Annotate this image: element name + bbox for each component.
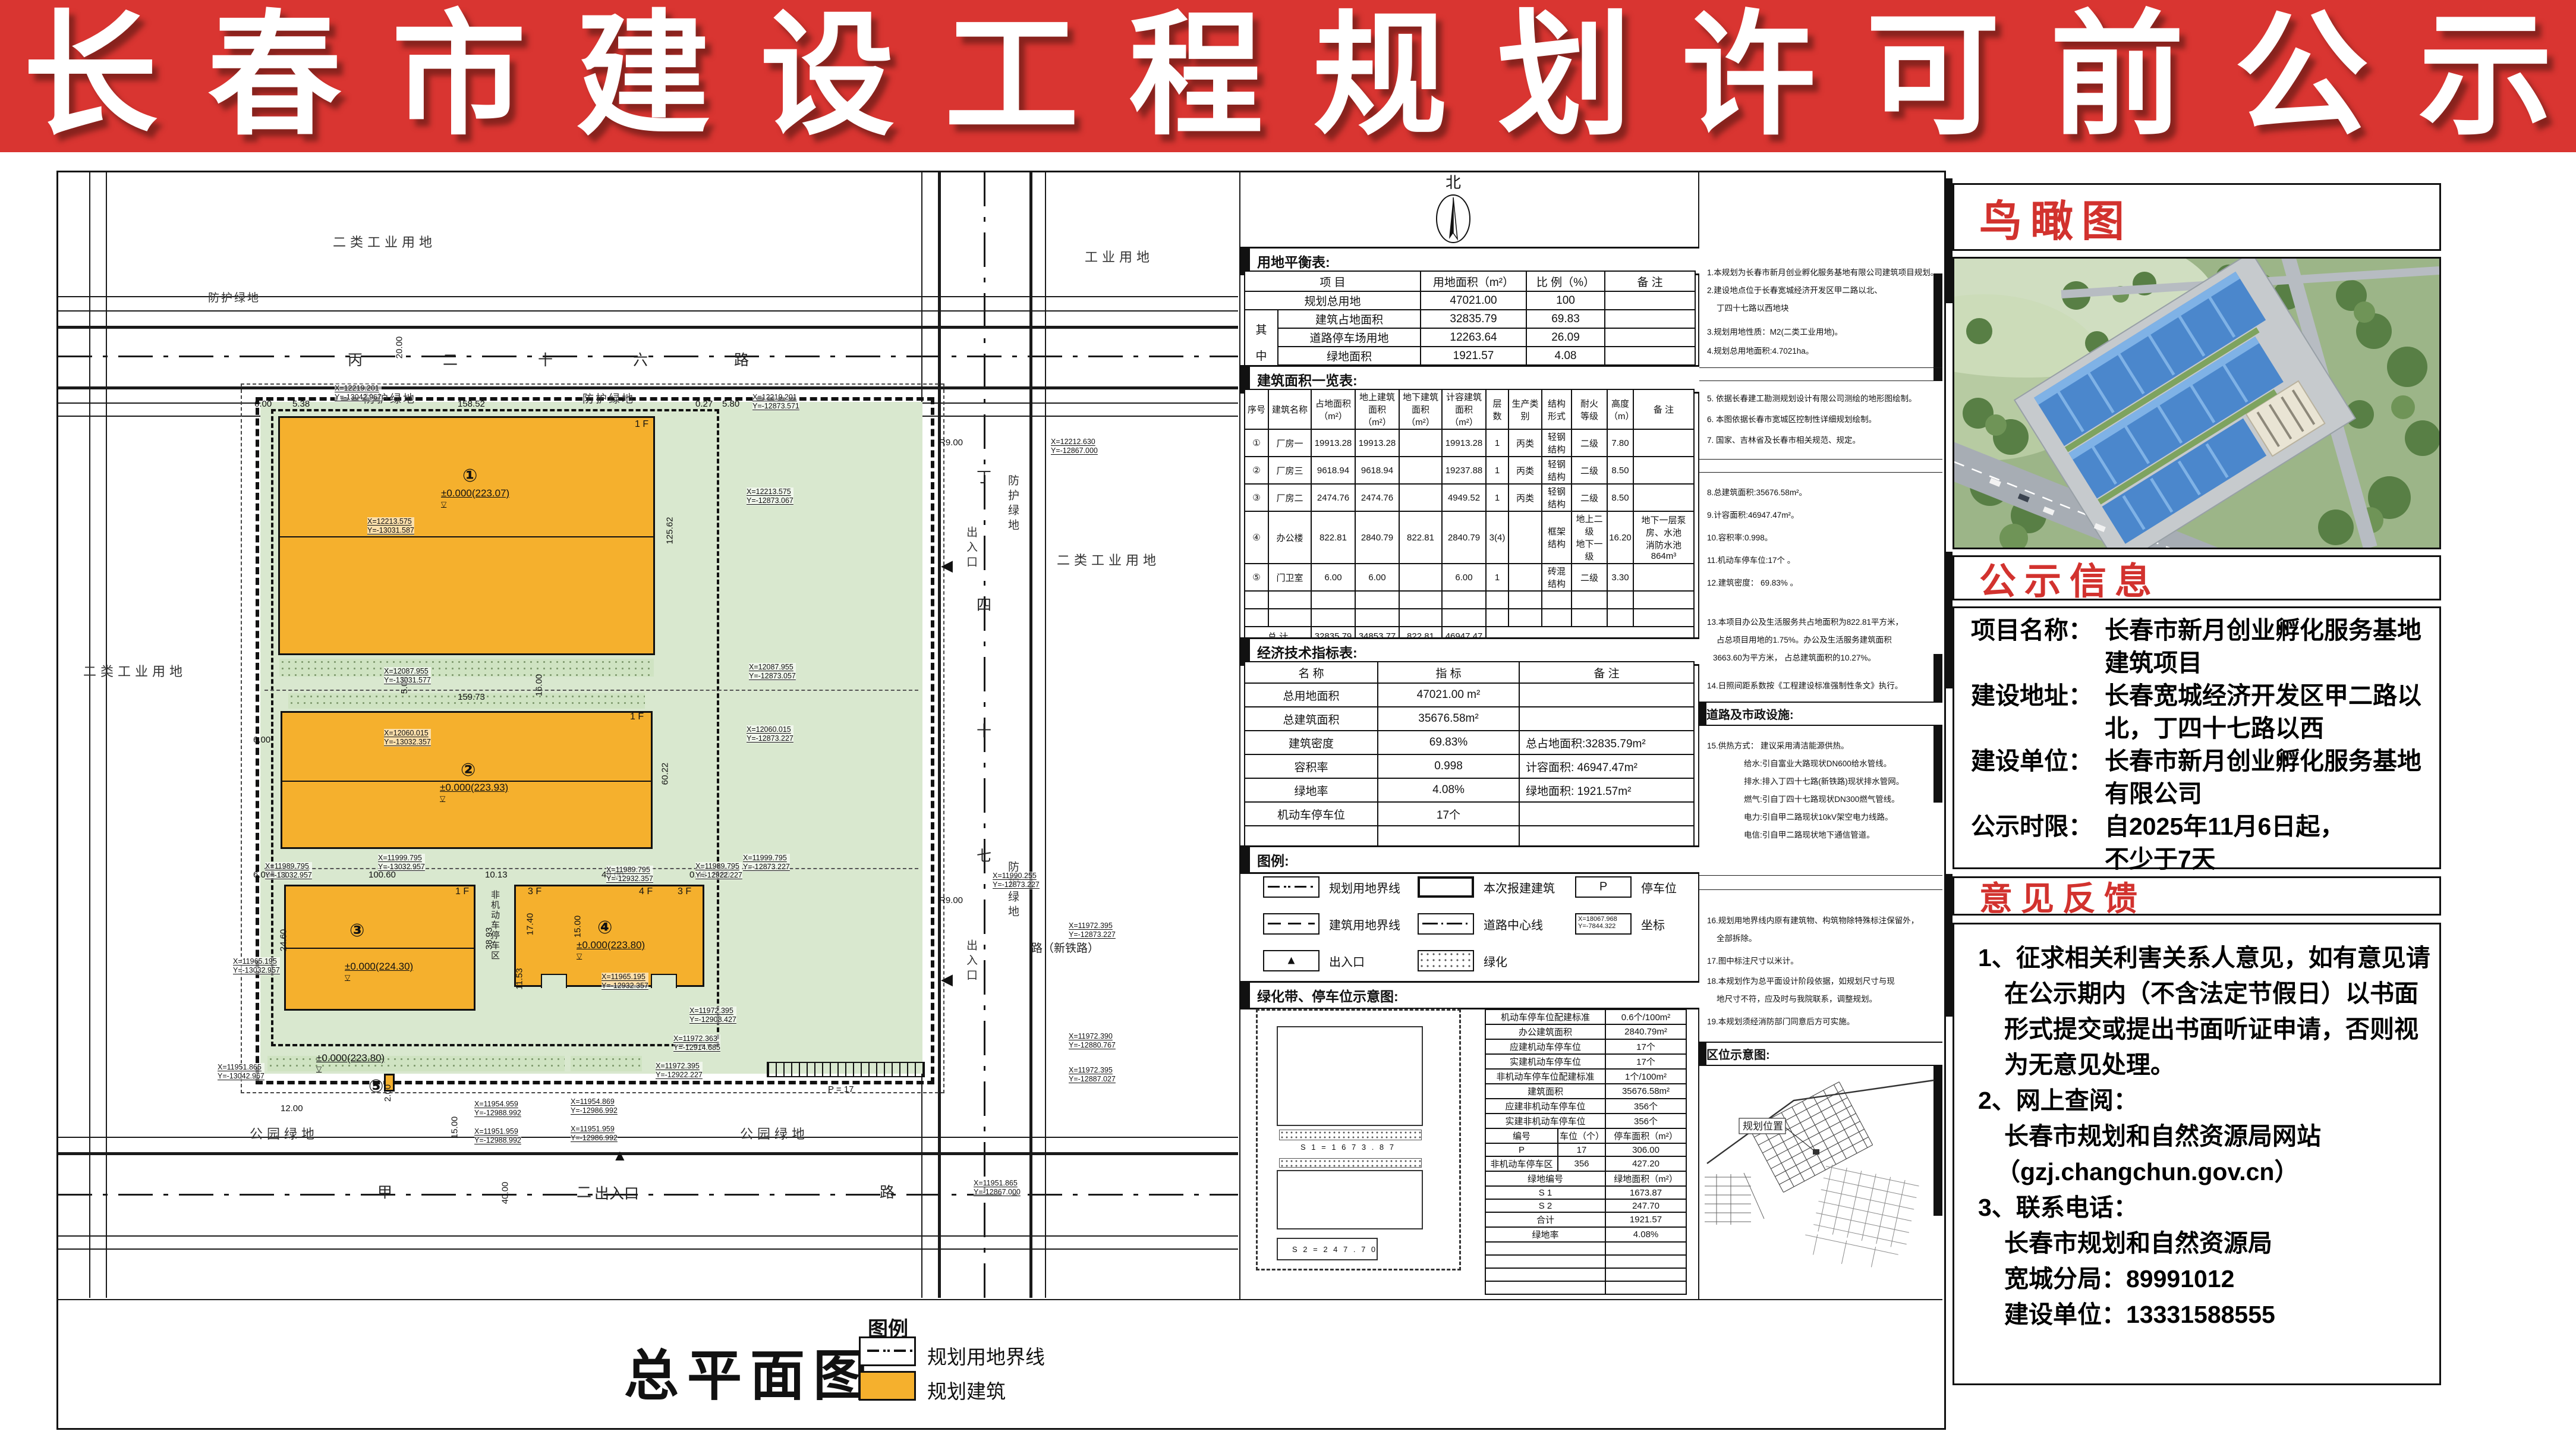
building-list-cell bbox=[1355, 591, 1399, 609]
building-list-cell bbox=[1268, 591, 1311, 609]
plan-annotation-tri: ◀ bbox=[941, 558, 953, 573]
green-parking-cell: 2840.79m² bbox=[1605, 1024, 1686, 1039]
eco-cell: 总占地面积:32835.79m² bbox=[1519, 731, 1694, 754]
green-parking-cell: 车位（个） bbox=[1558, 1128, 1605, 1143]
building-list-cell bbox=[1509, 511, 1542, 564]
plan-annotation-dim: 0.27 bbox=[695, 399, 713, 409]
building-list-cell: 822.81 bbox=[1399, 511, 1442, 564]
info-value-line: 有限公司 bbox=[2105, 778, 2421, 810]
building-list-header: 结构 形式 bbox=[1542, 389, 1572, 429]
cell: 4.08 bbox=[1526, 347, 1605, 365]
info-value: 长春市新月创业孵化服务基地建筑项目 bbox=[2105, 614, 2421, 680]
green-parking-cell bbox=[1605, 1242, 1686, 1255]
panel-tick bbox=[1945, 874, 1953, 1017]
plan-annotation-coord: X=11965.195 Y=-13032.957 bbox=[233, 957, 280, 975]
eco-header: 指 标 bbox=[1378, 662, 1519, 683]
green-parking-cell bbox=[1485, 1281, 1605, 1294]
note-line: 给水:引自富业大路现状DN600给水管线。 bbox=[1744, 759, 1940, 769]
green-parking-cell: 编号 bbox=[1485, 1128, 1558, 1143]
note-line: 17.图中标注尺寸以米计。 bbox=[1707, 956, 1940, 966]
info-label: 公示时限： bbox=[1971, 810, 2105, 876]
building-list-cell: 二级 bbox=[1572, 564, 1607, 591]
legend-item-出入口: ▲出入口 bbox=[1263, 950, 1365, 971]
utilities-title: 道路及市政设施: bbox=[1698, 702, 1942, 726]
info-box: 项目名称：长春市新月创业孵化服务基地建筑项目建设地址：长春宽城经济开发区甲二路以… bbox=[1953, 606, 2441, 869]
plan-annotation-coord: X=11989.795 Y=-12932.357 bbox=[606, 866, 653, 883]
plan-annotation-coord: X=11954.959 Y=-12988.992 bbox=[474, 1100, 521, 1118]
green-parking-cell: 17个 bbox=[1605, 1054, 1686, 1069]
plan-annotation-land: 公园绿地 bbox=[250, 1124, 319, 1143]
building-list-cell: 6.00 bbox=[1355, 564, 1399, 591]
building-list-cell: 9618.94 bbox=[1355, 457, 1399, 484]
legend-swatch-building bbox=[859, 1371, 916, 1401]
building-list-cell: 丙类 bbox=[1509, 484, 1542, 511]
plan-annotation-road: 十 bbox=[538, 348, 553, 370]
plan-annotation-circ: ⑤ bbox=[369, 1076, 383, 1097]
plan-annotation-green: 防护绿地 bbox=[582, 390, 635, 406]
building-list-header: 地上建筑 面积（m²） bbox=[1355, 389, 1399, 429]
plan-annotation-greenv: 防护绿地 bbox=[1004, 474, 1021, 534]
plan-annotation-coord: X=11999.795 Y=-13032.957 bbox=[378, 854, 425, 872]
plan-annotation-dim: 12.00 bbox=[281, 1103, 303, 1114]
plan-annotation-coord: X=11972.363 Y=-12914.685 bbox=[673, 1034, 720, 1052]
note-line: 4.规划总用地面积:4.7021ha。 bbox=[1707, 346, 1940, 356]
legend-item-本次报建建筑: 本次报建建筑 bbox=[1418, 876, 1555, 898]
road-line bbox=[58, 1248, 1238, 1250]
note-item: 6. 本图依据长春市宽城区控制性详细规划绘制。 bbox=[1707, 414, 1940, 432]
legend-glyph: ▲ bbox=[1264, 954, 1318, 968]
legend-item-停车位: P停车位 bbox=[1575, 876, 1677, 898]
building-list-cell: 1 bbox=[1486, 457, 1509, 484]
building-list-cell bbox=[1399, 457, 1442, 484]
legend-item-绿化: 绿化 bbox=[1418, 950, 1507, 971]
eco-cell bbox=[1519, 802, 1694, 826]
building-4-notch bbox=[651, 974, 677, 988]
building-list-cell: 1 bbox=[1486, 429, 1509, 457]
note-line: 2.建设地点位于长春宽城经济开发区甲二路以北、 bbox=[1707, 285, 1940, 295]
info-row: 建设单位：长春市新月创业孵化服务基地有限公司 bbox=[1971, 745, 2439, 810]
plan-annotation-road: 丙 bbox=[348, 348, 363, 370]
building-list-cell: 地上二级 地下一级 bbox=[1572, 511, 1607, 564]
green-parking-cell: P bbox=[1485, 1143, 1558, 1156]
plan-annotation-circ: ① bbox=[462, 466, 477, 486]
plan-annotation-road: 丁 bbox=[977, 466, 991, 487]
note-item: 17.图中标注尺寸以米计。 bbox=[1707, 956, 1940, 974]
building-list-cell: 地下一层泵房、水池 消防水池864m³ bbox=[1633, 511, 1694, 564]
info-value-line: 不少于7天 bbox=[2105, 843, 2344, 876]
plan-annotation-fl: 3 F bbox=[678, 886, 691, 897]
building-list-cell bbox=[1607, 591, 1633, 609]
feedback-line: 3、联系电话： bbox=[1978, 1190, 2439, 1225]
building-list-cell: 轻钢 结构 bbox=[1542, 484, 1572, 511]
note-item: 10.容积率:0.998。 bbox=[1707, 533, 1940, 551]
guide-line bbox=[264, 690, 918, 691]
building-list-cell: 二级 bbox=[1572, 429, 1607, 457]
building-list-cell: 19913.28 bbox=[1442, 429, 1486, 457]
plan-annotation-coord: X=12087.955 Y=-12873.057 bbox=[749, 663, 796, 681]
plan-annotation-greenv: 出入口 bbox=[963, 939, 979, 984]
legend-item-label: 道路中心线 bbox=[1484, 916, 1543, 933]
building-list-header: 地下建筑 面积（m²） bbox=[1399, 389, 1442, 429]
note-line: 14.日照间距系数按《工程建设标准强制性条文》执行。 bbox=[1707, 681, 1940, 691]
cell bbox=[1605, 347, 1695, 365]
note-line: 11.机动车停车位:17个 。 bbox=[1707, 555, 1940, 565]
site-plan bbox=[58, 172, 1238, 1298]
plan-annotation-road: 出入口 bbox=[594, 1182, 639, 1203]
plan-annotation-land: 二类工业用地 bbox=[333, 232, 436, 251]
legend-item-label: 出入口 bbox=[1329, 952, 1365, 970]
building-list-header: 计容建筑 面积（m²） bbox=[1442, 389, 1486, 429]
green-parking-cell: 建筑面积 bbox=[1485, 1084, 1605, 1099]
building-list-cell: 二级 bbox=[1572, 484, 1607, 511]
north-arrow: 北 bbox=[1424, 174, 1483, 248]
green-parking-cell bbox=[1485, 1242, 1605, 1255]
cell: 绿地面积 bbox=[1278, 347, 1421, 365]
green-parking-cell: 非机动车停车位配建标准 bbox=[1485, 1069, 1605, 1084]
eco-cell: 0.998 bbox=[1378, 754, 1519, 778]
plan-annotation-coord: X=12213.575 Y=-13031.587 bbox=[367, 517, 414, 535]
plan-annotation-dimr: 11.53 bbox=[515, 968, 525, 989]
green-parking-cell: 356 bbox=[1558, 1156, 1605, 1171]
plan-annotation-vertsm: 非机动车停车区 bbox=[489, 890, 501, 961]
building-list-cell bbox=[1311, 591, 1355, 609]
cell bbox=[1605, 291, 1695, 310]
building-list-cell: 9618.94 bbox=[1311, 457, 1355, 484]
note-sep bbox=[1699, 472, 1942, 473]
building-list-cell bbox=[1399, 484, 1442, 511]
info-label: 建设单位： bbox=[1971, 745, 2105, 810]
building-list-header: 备 注 bbox=[1633, 389, 1694, 429]
plan-annotation-green: 防护绿地 bbox=[208, 289, 260, 305]
note-line: 地尺寸不符，应及时与我院联系，调整规划。 bbox=[1717, 994, 1940, 1004]
page: 长春市建设工程规划许可前公示 bbox=[0, 0, 2576, 1431]
building-list-cell bbox=[1399, 564, 1442, 591]
plan-annotation-dim: R9.00 bbox=[939, 438, 963, 448]
green-parking-cell: 35676.58m² bbox=[1605, 1084, 1686, 1099]
plan-annotation-dim: 159.73 bbox=[458, 692, 485, 702]
eco-cell: 47021.00 m² bbox=[1378, 683, 1519, 707]
s2-label: S 2 = 2 4 7 . 7 0 bbox=[1292, 1245, 1377, 1254]
building-list-header: 占地面积 （m²） bbox=[1311, 389, 1355, 429]
building-list-cell: ③ bbox=[1245, 484, 1268, 511]
plan-annotation-coord: X=12219.201 Y=-13042.967 bbox=[335, 384, 382, 402]
note-line: 19.本规划须经消防部门同意后方可实施。 bbox=[1707, 1017, 1940, 1027]
info-value-line: 自2025年11月6日起， bbox=[2105, 810, 2344, 843]
note-item: 3.规划用地性质：M2(二类工业用地)。 bbox=[1707, 327, 1940, 345]
eco-cell bbox=[1519, 683, 1694, 707]
note-sep bbox=[1699, 380, 1942, 381]
plan-annotation-circ: ② bbox=[461, 760, 475, 781]
building-list-cell: ② bbox=[1245, 457, 1268, 484]
info-label: 项目名称： bbox=[1971, 614, 2105, 680]
eco-header: 备 注 bbox=[1519, 662, 1694, 683]
note-sep bbox=[1699, 875, 1942, 876]
legend-coord: X=18067.968 Y=-7844.322 bbox=[1576, 914, 1630, 931]
plan-annotation-greenv: 出入口 bbox=[963, 526, 979, 571]
building-list-header: 序号 bbox=[1245, 389, 1268, 429]
note-item: 16.规划用地界线内原有建筑物、构筑物除特殊标注保留外，全部拆除。 bbox=[1707, 916, 1940, 951]
green-parking-cell: 356个 bbox=[1605, 1114, 1686, 1128]
feedback-line: 2、网上查阅： bbox=[1978, 1083, 2439, 1118]
building-list-cell: 丙类 bbox=[1509, 429, 1542, 457]
building-list-cell: 办公楼 bbox=[1268, 511, 1311, 564]
th-item: 项 目 bbox=[1245, 271, 1421, 291]
building-list-cell: 7.80 bbox=[1607, 429, 1633, 457]
building-list-cell: 门卫室 bbox=[1268, 564, 1311, 591]
building-list-cell bbox=[1442, 609, 1486, 627]
note-item: 11.机动车停车位:17个 。 bbox=[1707, 555, 1940, 573]
plan-title: 总平面图 bbox=[624, 1332, 876, 1411]
green-parking-cell: 1921.57 bbox=[1605, 1212, 1686, 1227]
building-list-cell: 框架 结构 bbox=[1542, 511, 1572, 564]
eco-cell: 4.08% bbox=[1378, 778, 1519, 802]
building-list-cell: ④ bbox=[1245, 511, 1268, 564]
green-parking-cell bbox=[1605, 1268, 1686, 1281]
info-row: 项目名称：长春市新月创业孵化服务基地建筑项目 bbox=[1971, 614, 2439, 680]
plan-annotation-coord: X=11972.395 Y=-12887.027 bbox=[1069, 1066, 1116, 1084]
info-value: 长春市新月创业孵化服务基地有限公司 bbox=[2105, 745, 2421, 810]
plan-annotation-fl: 1 F bbox=[630, 712, 644, 722]
building-list-cell bbox=[1245, 591, 1268, 609]
green-hatch bbox=[267, 1056, 565, 1071]
plan-annotation-road: 七 bbox=[977, 844, 991, 866]
plan-annotation-coord: X=12060.015 Y=-13032.357 bbox=[384, 729, 431, 747]
green-parking-cell: 0.6个/100m² bbox=[1605, 1009, 1686, 1024]
green-parking-cell: 应建非机动车停车位 bbox=[1485, 1099, 1605, 1114]
note-line: 全部拆除。 bbox=[1717, 933, 1940, 943]
cell: 道路停车场用地 bbox=[1278, 328, 1421, 347]
note-sep bbox=[1699, 459, 1942, 460]
legend-swatch: X=18067.968 Y=-7844.322 bbox=[1575, 913, 1632, 935]
legend-label-building: 规划建筑 bbox=[927, 1376, 1006, 1404]
plan-annotation-dim: 10.13 bbox=[485, 870, 508, 880]
building-list-cell bbox=[1572, 609, 1607, 627]
cell: 69.83 bbox=[1526, 310, 1605, 328]
cell: 建筑占地面积 bbox=[1278, 310, 1421, 328]
building-list-cell bbox=[1633, 484, 1694, 511]
building-list-cell: 轻钢 结构 bbox=[1542, 429, 1572, 457]
plan-annotation-coord: X=12060.015 Y=-12873.227 bbox=[747, 725, 793, 743]
plan-annotation-circ: ④ bbox=[597, 917, 612, 938]
note-item: 7. 国家、吉林省及长春市相关规范、规定。 bbox=[1707, 435, 1940, 453]
building-list-cell bbox=[1633, 609, 1694, 627]
legend-item-道路中心线: 道路中心线 bbox=[1418, 913, 1543, 935]
plan-annotation-land: 工业用地 bbox=[1085, 247, 1154, 266]
plan-annotation-fl: 1 F bbox=[455, 886, 469, 897]
building-list-cell bbox=[1607, 609, 1633, 627]
note-line: 占总项目用地的1.75%。办公及生活服务建筑面积 bbox=[1717, 635, 1940, 645]
road-line bbox=[58, 1235, 1238, 1237]
plan-annotation-dimr: 40.00 bbox=[500, 1182, 510, 1204]
s1-label: S 1 = 1 6 7 3 . 8 7 bbox=[1300, 1143, 1396, 1152]
legend-item-label: 坐标 bbox=[1641, 916, 1665, 933]
guide-line bbox=[264, 868, 918, 869]
info-value-line: 长春市新月创业孵化服务基地 bbox=[2105, 745, 2421, 778]
building-list-cell: 厂房一 bbox=[1268, 429, 1311, 457]
north-label: 北 bbox=[1446, 174, 1461, 191]
note-item: 19.本规划须经消防部门同意后方可实施。 bbox=[1707, 1017, 1940, 1034]
green-parking-cell: 机动车停车位配建标准 bbox=[1485, 1009, 1605, 1024]
feedback-line: （gzj.changchun.gov.cn） bbox=[1996, 1154, 2439, 1190]
building-list-cell: 19237.88 bbox=[1442, 457, 1486, 484]
th-ratio: 比 例（%） bbox=[1526, 271, 1605, 291]
building-list-cell bbox=[1509, 564, 1542, 591]
plan-annotation-land: 二类工业用地 bbox=[83, 661, 187, 680]
eco-cell: 绿地面积: 1921.57m² bbox=[1519, 778, 1694, 802]
road-centerline bbox=[58, 1194, 1238, 1196]
feedback-line: 形式提交或提出书面听证申请，否则视 bbox=[2004, 1011, 2439, 1047]
legend-item-label: 建筑用地界线 bbox=[1329, 916, 1400, 933]
plan-annotation-dimr: 60.22 bbox=[660, 763, 670, 785]
plan-annotation-coord: X=12219.201 Y=-12873.571 bbox=[752, 393, 799, 411]
note-item: 12.建筑密度： 69.83% 。 bbox=[1707, 578, 1940, 596]
note-line: 8.总建筑面积:35676.58m²。 bbox=[1707, 488, 1940, 498]
green-parking-cell: S 1 bbox=[1485, 1186, 1605, 1199]
road-edge bbox=[1029, 172, 1032, 1298]
note-sep bbox=[1699, 367, 1942, 368]
info-title: 公示信息 bbox=[1953, 555, 2441, 600]
building-list-cell bbox=[1245, 609, 1268, 627]
cell bbox=[1605, 328, 1695, 347]
plan-annotation-coord: X=11972.395 Y=-12908.427 bbox=[689, 1007, 736, 1024]
feedback-box: 1、征求相关利害关系人意见，如有意见请在公示期内（不含法定节假日）以书面形式提交… bbox=[1953, 923, 2441, 1385]
plan-annotation-land: 公园绿地 bbox=[740, 1124, 809, 1143]
building-list-cell bbox=[1486, 591, 1509, 609]
legend-grid: 规划用地界线本次报建建筑P停车位建筑用地界线道路中心线X=18067.968 Y… bbox=[1239, 868, 1699, 981]
building-list-cell bbox=[1268, 609, 1311, 627]
green-parking-cell: 应建机动车停车位 bbox=[1485, 1039, 1605, 1054]
green-parking-cell bbox=[1605, 1255, 1686, 1268]
legend-item-label: 绿化 bbox=[1484, 952, 1507, 970]
eco-cell: 建筑密度 bbox=[1245, 731, 1378, 754]
note-line: 排水:排入丁四十七路(新铁路)现状排水管网。 bbox=[1744, 776, 1940, 787]
plan-annotation-road: 十 bbox=[977, 719, 991, 741]
plan-annotation-coord: X=11951.865 Y=-12867.000 bbox=[974, 1179, 1021, 1197]
green-parking-cell: 实建机动车停车位 bbox=[1485, 1054, 1605, 1069]
plan-annotation-road: 二 bbox=[577, 1181, 591, 1202]
plan-annotation-dim: 6.00 bbox=[253, 735, 270, 745]
note-line: 5. 依据长春建工勘测规划设计有限公司测绘的地形图绘制。 bbox=[1707, 394, 1940, 404]
building-list-cell bbox=[1633, 591, 1694, 609]
cell: 规划总用地 bbox=[1245, 291, 1421, 310]
plan-annotation-dimr: 2.00 bbox=[383, 1084, 393, 1102]
plan-annotation-coord: X=11965.195 Y=-12932.357 bbox=[602, 973, 648, 990]
plan-annotation-dimr: 16.00 bbox=[534, 674, 544, 697]
plan-annotation-coord: X=11990.255 Y=-12873.227 bbox=[993, 872, 1040, 889]
building-list-cell: 1 bbox=[1486, 564, 1509, 591]
location-label: 规划位置 bbox=[1743, 1121, 1783, 1132]
green-parking-diagram: S 1 = 1 6 7 3 . 8 7 S 2 = 2 4 7 . 7 0 bbox=[1256, 1009, 1461, 1270]
divider-bottom bbox=[56, 1299, 1942, 1300]
note-line: 16.规划用地界线内原有建筑物、构筑物除特殊标注保留外， bbox=[1707, 916, 1940, 926]
plan-annotation-tri: ◀ bbox=[941, 971, 953, 987]
green-parking-cell: S 2 bbox=[1485, 1199, 1605, 1212]
plan-annotation-dim: 6.00 bbox=[254, 399, 272, 409]
note-item: 13.本项目办公及生活服务共占地面积为822.81平方米，占总项目用地的1.75… bbox=[1707, 617, 1940, 671]
legend-item-坐标: X=18067.968 Y=-7844.322坐标 bbox=[1575, 913, 1665, 935]
plan-annotation-elev: ±0.000(223.80) bbox=[577, 939, 645, 960]
plan-annotation-road: 甲 bbox=[377, 1181, 392, 1202]
green-parking-cell: 绿地面积（m²） bbox=[1605, 1171, 1686, 1186]
cell: 32835.79 bbox=[1421, 310, 1526, 328]
note-item: 8.总建筑面积:35676.58m²。 bbox=[1707, 488, 1940, 505]
note-line: 丁四十七路以西地块 bbox=[1717, 303, 1940, 313]
building-list-cell: 厂房三 bbox=[1268, 457, 1311, 484]
note-line: 7. 国家、吉林省及长春市相关规范、规定。 bbox=[1707, 435, 1940, 445]
legend-swatch bbox=[1418, 913, 1474, 935]
cell: 100 bbox=[1526, 291, 1605, 310]
green-parking-cell: 实建非机动车停车位 bbox=[1485, 1114, 1605, 1128]
building-list-cell bbox=[1633, 457, 1694, 484]
building-4-notch bbox=[541, 974, 567, 988]
building-list-cell: ① bbox=[1245, 429, 1268, 457]
green-parking-cell: 办公建筑面积 bbox=[1485, 1024, 1605, 1039]
note-item: 4.规划总用地面积:4.7021ha。 bbox=[1707, 346, 1940, 364]
green-parking-cell: 356个 bbox=[1605, 1099, 1686, 1114]
plan-annotation-road: 六 bbox=[633, 348, 648, 370]
building-list-cell bbox=[1572, 591, 1607, 609]
th-note: 备 注 bbox=[1605, 271, 1695, 291]
building-list-cell bbox=[1633, 429, 1694, 457]
info-value-line: 北，丁四十七路以西 bbox=[2105, 712, 2421, 745]
building-list-header: 层 数 bbox=[1486, 389, 1509, 429]
feedback-title: 意见反馈 bbox=[1953, 876, 2441, 916]
legend-swatch bbox=[1418, 876, 1474, 898]
green-parking-table: 机动车停车位配建标准0.6个/100m²办公建筑面积2840.79m²应建机动车… bbox=[1485, 1009, 1687, 1295]
plan-annotation-dim: P = 17 bbox=[828, 1084, 854, 1095]
cell: 12263.64 bbox=[1421, 328, 1526, 347]
green-parking-cell: 非机动车停车区 bbox=[1485, 1156, 1558, 1171]
plan-annotation-coord: X=12212.630 Y=-12867.000 bbox=[1051, 438, 1098, 455]
plan-annotation-greenv: 防护绿地 bbox=[1004, 861, 1021, 920]
building-list-cell bbox=[1542, 609, 1572, 627]
note-line: 15.供热方式： 建议采用清洁能源供热。 bbox=[1707, 741, 1940, 751]
plan-annotation-fl: 4 F bbox=[639, 886, 653, 897]
plan-annotation-tri: ▲ bbox=[612, 1147, 628, 1163]
building-list-cell: 4949.52 bbox=[1442, 484, 1486, 511]
legend-swatch: ▲ bbox=[1263, 950, 1320, 971]
divider-tables-notes bbox=[1698, 171, 1699, 1299]
info-row: 公示时限：自2025年11月6日起，不少于7天 bbox=[1971, 810, 2439, 876]
plan-annotation-coord: X=11954.869 Y=-12986.992 bbox=[571, 1097, 618, 1115]
green-parking-cell: 合计 bbox=[1485, 1212, 1605, 1227]
plan-annotation-elev: ±0.000(223.80) bbox=[316, 1052, 385, 1073]
road-edge bbox=[58, 326, 1238, 329]
eco-header: 名 称 bbox=[1245, 662, 1378, 683]
plan-annotation-dimr: 20.00 bbox=[394, 336, 404, 359]
building-list-cell: 2840.79 bbox=[1442, 511, 1486, 564]
feedback-line: 长春市规划和自然资源局 bbox=[2004, 1225, 2439, 1261]
plan-annotation-dim: 158.52 bbox=[458, 399, 485, 409]
divider-plan-tables bbox=[1239, 171, 1240, 1299]
note-item: 18.本规划作为总平面设计阶段依据，如规划尺寸与现地尺寸不符，应及时与我院联系，… bbox=[1707, 976, 1940, 1012]
building-list-cell: 2474.76 bbox=[1311, 484, 1355, 511]
plan-annotation-dim: R9.00 bbox=[939, 895, 963, 905]
location-map: 规划位置 bbox=[1705, 1067, 1938, 1272]
green-parking-cell: 306.00 bbox=[1605, 1143, 1686, 1156]
plan-annotation-coord: X=11972.395 Y=-12873.227 bbox=[1069, 921, 1116, 939]
building-list-table: 序号建筑名称占地面积 （m²）地上建筑 面积（m²）地下建筑 面积（m²）计容建… bbox=[1244, 389, 1695, 674]
plan-annotation-road: 路 bbox=[880, 1181, 895, 1202]
th-area: 用地面积（m²） bbox=[1421, 271, 1526, 291]
building-list-cell: ⑤ bbox=[1245, 564, 1268, 591]
green-parking-cell: 247.70 bbox=[1605, 1199, 1686, 1212]
plan-annotation-coord: X=11972.395 Y=-12922.227 bbox=[656, 1062, 703, 1080]
legend-item-label: 停车位 bbox=[1641, 879, 1677, 896]
green-parking-cell: 17个 bbox=[1605, 1039, 1686, 1054]
eco-cell: 机动车停车位 bbox=[1245, 802, 1378, 826]
building-list-cell: 1 bbox=[1486, 484, 1509, 511]
